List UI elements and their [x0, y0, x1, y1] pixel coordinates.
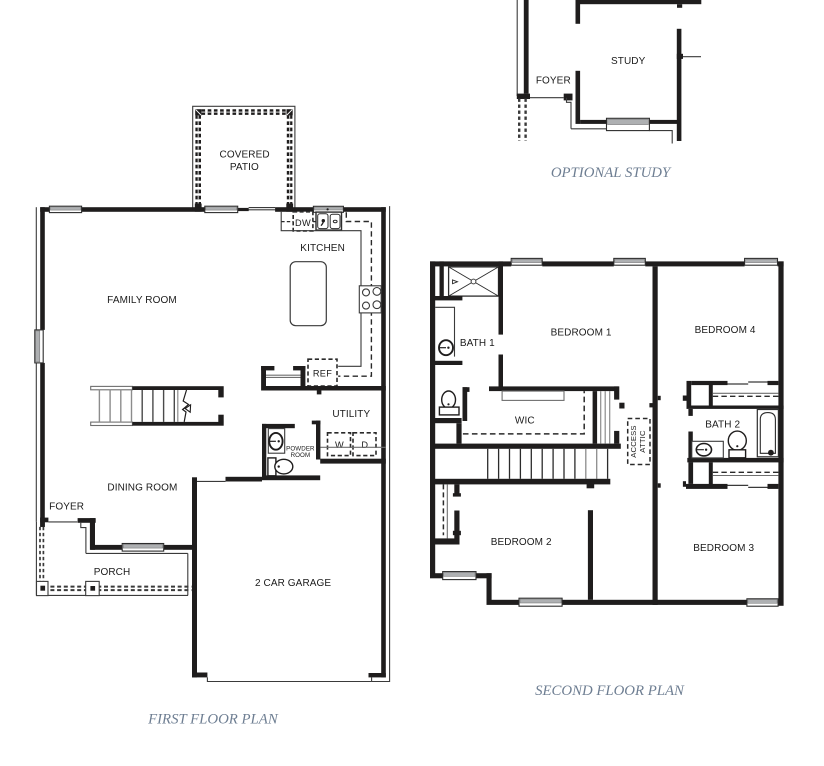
- svg-text:SECOND FLOOR PLAN: SECOND FLOOR PLAN: [535, 683, 685, 699]
- svg-text:DW: DW: [295, 218, 311, 228]
- svg-text:D: D: [361, 440, 368, 450]
- svg-text:ACCESS: ACCESS: [629, 425, 638, 457]
- svg-text:2 CAR GARAGE: 2 CAR GARAGE: [255, 578, 331, 589]
- svg-text:FOYER: FOYER: [49, 501, 84, 512]
- svg-text:PATIO: PATIO: [230, 162, 259, 173]
- svg-text:KITCHEN: KITCHEN: [300, 243, 345, 254]
- svg-text:REF: REF: [313, 368, 332, 378]
- svg-text:FOYER: FOYER: [536, 76, 571, 87]
- svg-text:BATH 1: BATH 1: [460, 338, 495, 349]
- svg-text:FAMILY ROOM: FAMILY ROOM: [107, 295, 177, 306]
- svg-text:WIC: WIC: [515, 415, 535, 426]
- svg-text:FIRST FLOOR PLAN: FIRST FLOOR PLAN: [147, 711, 279, 727]
- svg-text:DINING ROOM: DINING ROOM: [107, 483, 177, 494]
- svg-text:BEDROOM 2: BEDROOM 2: [491, 537, 552, 548]
- svg-text:STUDY: STUDY: [611, 56, 646, 67]
- svg-text:UTILITY: UTILITY: [332, 409, 370, 420]
- svg-text:BATH 2: BATH 2: [705, 419, 740, 430]
- svg-text:BEDROOM 1: BEDROOM 1: [551, 327, 612, 338]
- svg-text:ATTIC: ATTIC: [638, 430, 647, 453]
- svg-text:BEDROOM 4: BEDROOM 4: [695, 325, 756, 336]
- svg-text:PORCH: PORCH: [94, 567, 131, 578]
- svg-text:COVERED: COVERED: [220, 150, 270, 161]
- svg-text:W: W: [335, 440, 344, 450]
- svg-text:BEDROOM 3: BEDROOM 3: [693, 543, 754, 554]
- svg-text:OPTIONAL STUDY: OPTIONAL STUDY: [551, 165, 672, 181]
- svg-text:ROOM: ROOM: [291, 452, 311, 459]
